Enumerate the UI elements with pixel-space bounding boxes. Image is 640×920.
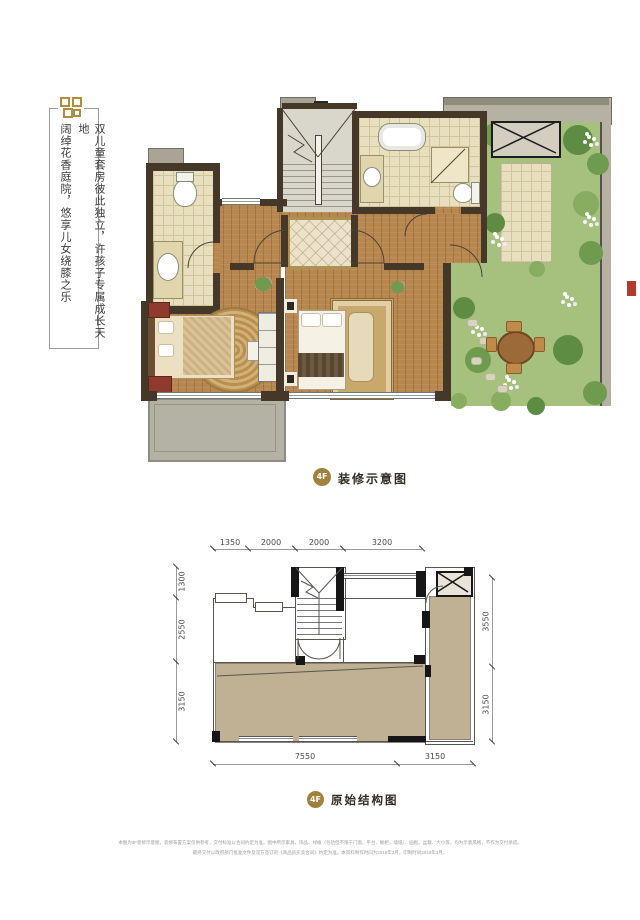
bed-blanket — [298, 353, 344, 377]
bathtub — [378, 123, 426, 151]
side-note-box: 双儿童套房彼此独立，许孩子专属成长天地 阔绰花香庭院，悠享儿女绕膝之乐 — [49, 108, 99, 349]
toilet — [173, 179, 197, 207]
garden-path — [500, 163, 552, 263]
dim-top-1: 1350 — [210, 538, 250, 547]
stepping-stone — [471, 357, 482, 365]
stepping-stone — [467, 319, 478, 327]
sink — [363, 167, 381, 187]
bush — [563, 125, 593, 155]
bush — [579, 241, 603, 265]
dim-left-3: 3150 — [178, 682, 187, 722]
balcony-inner-line — [154, 404, 276, 452]
wall — [281, 215, 288, 267]
wall-line — [343, 598, 425, 599]
bath-right-door-gap — [435, 207, 461, 214]
window-sill — [255, 602, 283, 612]
dim-bottom-2: 3150 — [415, 752, 455, 761]
dim-top-3: 2000 — [299, 538, 339, 547]
decorated-plan-title: 装修示意图 — [338, 470, 408, 487]
dim-line-right — [492, 578, 493, 742]
pillow — [301, 313, 321, 327]
brochure-page: 双儿童套房彼此独立，许孩子专属成长天地 阔绰花香庭院，悠享儿女绕膝之乐 — [0, 0, 640, 920]
wall — [261, 391, 289, 401]
flower-cluster — [565, 295, 569, 299]
flower-cluster — [587, 215, 591, 219]
stepping-stone — [497, 385, 508, 393]
garden-chair — [506, 321, 522, 332]
structural-plan-title: 原始结构图 — [331, 792, 399, 808]
wall — [282, 103, 357, 109]
garden-chair — [506, 363, 522, 374]
dim-left-2: 2550 — [178, 610, 187, 650]
bush — [453, 297, 475, 319]
column — [425, 665, 431, 677]
window — [157, 392, 261, 399]
pillow — [158, 344, 174, 357]
bush — [451, 393, 467, 409]
bush — [553, 335, 583, 365]
wall — [230, 263, 254, 270]
wall-line — [253, 598, 254, 607]
wall — [384, 263, 424, 270]
side-note-primary: 双儿童套房彼此独立，许孩子专属成长天地 — [75, 123, 107, 348]
wall-line — [213, 662, 426, 663]
floor-badge-decorated: 4F — [313, 468, 331, 486]
dim-line-top — [213, 549, 422, 550]
column — [212, 731, 220, 742]
disclaimer-line-2: 最终交付以政府部门批准文件及双方签订的《商品房买卖合同》约定为准。本资料制作时间… — [0, 849, 640, 856]
column — [291, 567, 299, 597]
window — [222, 198, 260, 205]
upper-right-floor — [357, 214, 481, 263]
flower-cluster — [507, 378, 511, 382]
dim-top-4: 3200 — [362, 538, 402, 547]
window-sill — [215, 593, 247, 603]
terrace-right — [429, 596, 471, 740]
window — [343, 573, 425, 579]
wall — [481, 214, 487, 263]
window — [239, 736, 293, 742]
toilet — [453, 183, 473, 203]
equipment-platform — [491, 121, 561, 158]
pillow — [158, 321, 174, 334]
column — [336, 567, 344, 611]
bush — [527, 397, 545, 415]
nightstand-mat — [148, 302, 170, 318]
chaise-sofa — [348, 312, 374, 382]
roof-band-shade — [444, 98, 609, 105]
wall — [351, 215, 358, 267]
window — [289, 392, 435, 399]
side-note-secondary: 阔绰花香庭院，悠享儿女绕膝之乐 — [57, 123, 73, 303]
potted-plant — [255, 277, 271, 291]
page-edge-marker — [627, 281, 636, 296]
wall — [215, 199, 222, 206]
pillow — [322, 313, 342, 327]
hall-carpet — [287, 217, 357, 269]
garden-chair — [486, 337, 497, 352]
column — [422, 611, 430, 628]
bush — [583, 381, 607, 405]
column — [414, 655, 425, 664]
wall — [141, 391, 157, 401]
column — [416, 571, 426, 597]
dim-right-2: 3150 — [482, 685, 491, 725]
disclaimer-line-1: 本图为4F装修示意图，装修布置方案仅供参考，交付标准以合同约定为准。图中所示家具… — [0, 839, 640, 846]
structural-floor-plan: 1350 2000 2000 3200 1300 2550 3150 3550 … — [165, 535, 510, 780]
decorated-floor-plan — [135, 95, 610, 465]
fret-ornament-icon — [58, 96, 84, 120]
stepping-stone — [485, 373, 496, 381]
terrace-bottom — [215, 663, 429, 743]
wall-line — [343, 637, 344, 663]
dim-line-bottom — [213, 764, 473, 765]
wall — [443, 263, 451, 395]
wall — [276, 278, 284, 395]
column — [388, 736, 426, 742]
potted-plant — [391, 281, 404, 293]
column — [464, 567, 473, 576]
nightstand — [284, 372, 297, 386]
dim-bottom-1: 7550 — [285, 752, 325, 761]
flower-cluster — [495, 235, 499, 239]
nightstand — [284, 299, 297, 313]
toilet-tank — [176, 172, 194, 182]
wall — [277, 108, 283, 212]
stair-rail — [315, 135, 322, 205]
wall — [435, 391, 451, 401]
bath-left-door-gap — [213, 243, 220, 273]
garden-table — [497, 331, 535, 365]
window — [299, 736, 357, 742]
bush — [491, 391, 511, 411]
wall-line — [213, 598, 214, 742]
dim-right-1: 3550 — [482, 602, 491, 642]
column — [296, 656, 305, 665]
dim-top-2: 2000 — [251, 538, 291, 547]
dim-left-1: 1300 — [178, 562, 187, 602]
wall — [260, 199, 287, 206]
bush — [587, 153, 609, 175]
bush — [485, 213, 505, 233]
shower-tray — [431, 147, 469, 183]
toilet-tank — [471, 182, 480, 204]
wall — [141, 301, 148, 398]
garden-chair — [534, 337, 545, 352]
bed-throw — [183, 317, 231, 375]
floor-badge-structural: 4F — [307, 791, 324, 808]
sink — [157, 253, 179, 281]
flower-cluster — [587, 135, 591, 139]
bush — [529, 261, 545, 277]
bush — [573, 191, 599, 217]
